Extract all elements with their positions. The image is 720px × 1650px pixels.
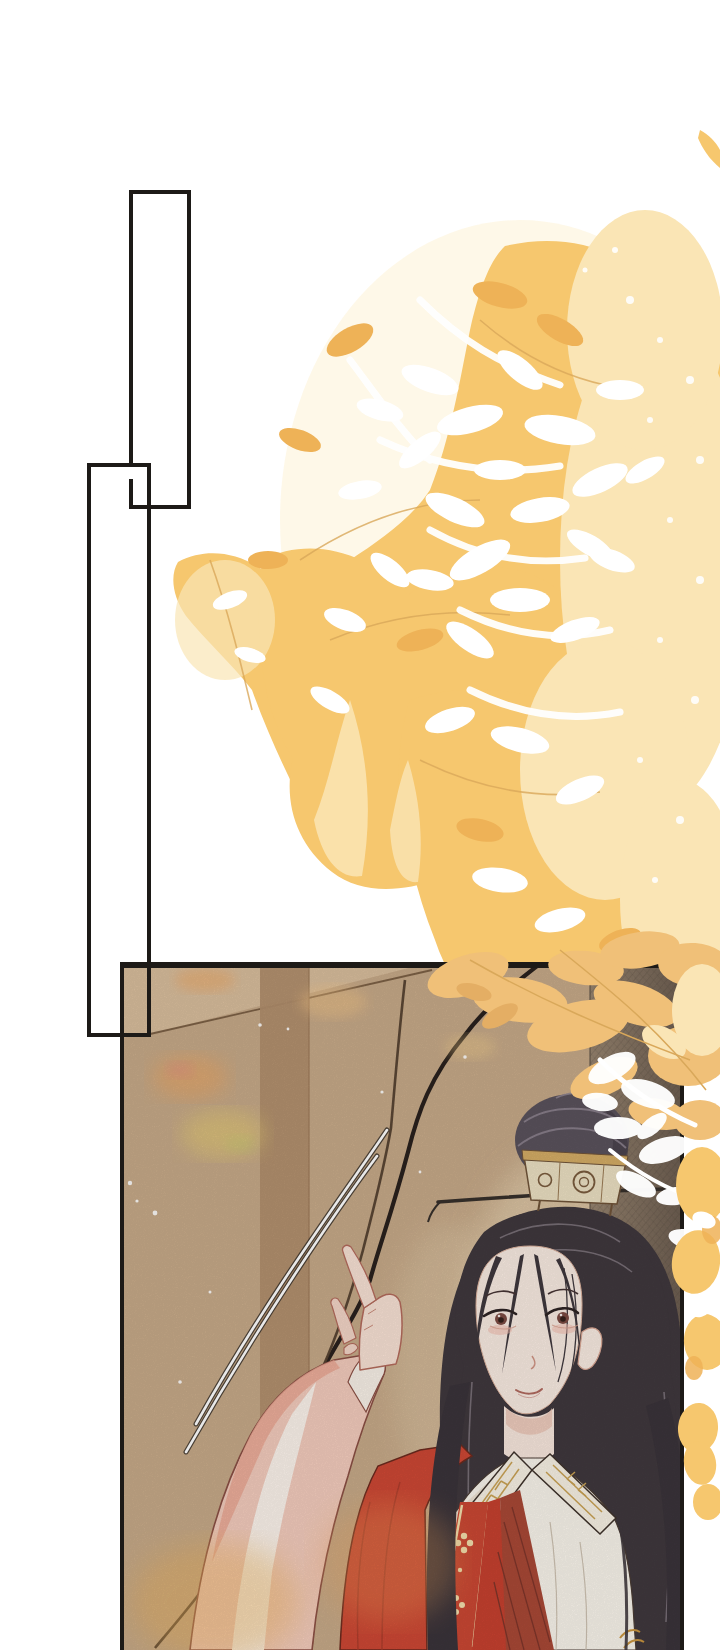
comic-page <box>0 0 720 1650</box>
empty-panel-tall <box>131 192 189 507</box>
golden-foliage <box>173 130 720 1050</box>
panel-border-left <box>120 962 124 1650</box>
foliage-corner-sprig <box>698 130 720 168</box>
empty-panel-small-fill <box>89 465 149 1035</box>
